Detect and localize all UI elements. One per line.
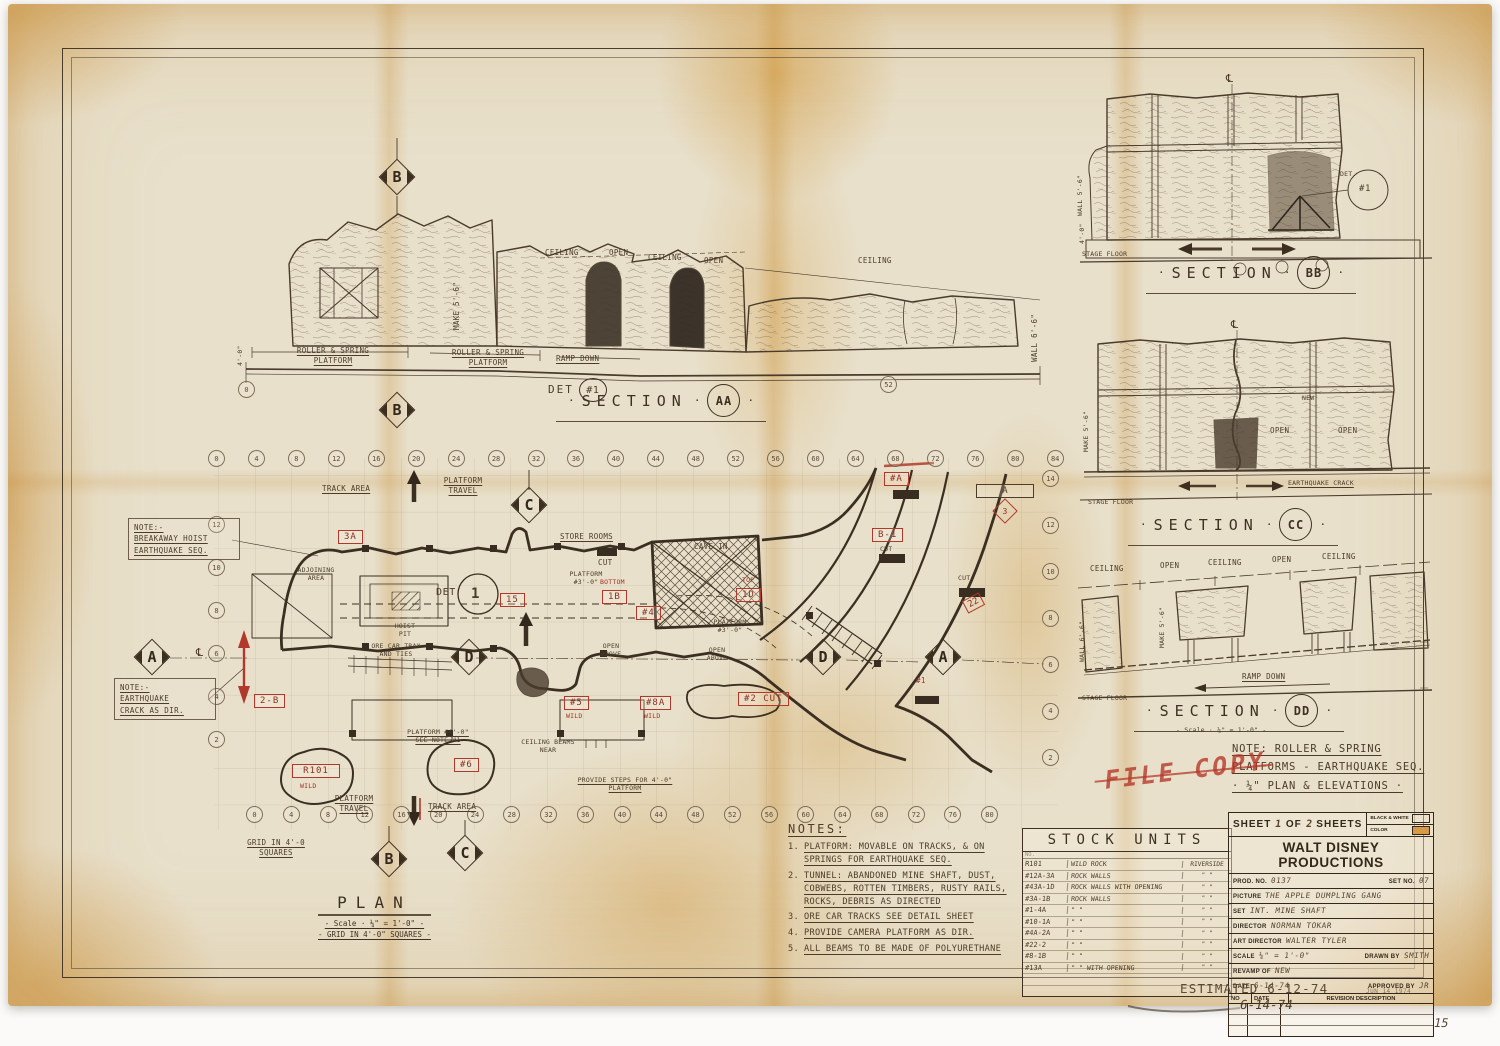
field-set: SET INT. MINE SHAFT: [1229, 904, 1433, 919]
grid-bubble: 76: [944, 806, 961, 823]
label-ceiling: CEILING: [1322, 552, 1356, 562]
tag-8a: #8A: [640, 696, 671, 710]
grid-bubble: 48: [687, 806, 704, 823]
received-date-stamp: JUN 14 1974: [1366, 988, 1411, 995]
centerline-symbol: ℄: [1226, 72, 1233, 85]
label-stage-floor: STAGE FLOOR: [1082, 694, 1127, 702]
field-scale-drawn: SCALE ¼" = 1'-0" DRAWN BY SMITH: [1229, 949, 1433, 964]
grid-bubble: 20: [408, 450, 425, 467]
tag-b1: B-1: [872, 528, 903, 542]
grid-bubble: 32: [528, 450, 545, 467]
grid-bubble: 48: [687, 450, 704, 467]
label-roller-spring-platform: ROLLER & SPRINGPLATFORM: [258, 346, 408, 366]
section-marker-c-top: C: [512, 488, 546, 522]
grid-bubble: 36: [567, 450, 584, 467]
notes-block: NOTES: 1. PLATFORM: MOVABLE ON TRACKS, &…: [788, 822, 1026, 959]
grid-bubble: 0: [238, 381, 255, 398]
centerline-symbol: ℄: [1231, 318, 1238, 331]
grid-bubble: 0: [208, 450, 225, 467]
grid-bubble: 52: [880, 376, 897, 393]
stock-unit-row: #8-1B " " " ": [1023, 951, 1231, 963]
section-marker-a-left: A: [135, 640, 169, 674]
label-open-above: OPENABOVE: [696, 646, 738, 663]
label-platform-3-0: PLATFORM#3'-0": [700, 618, 760, 635]
grid-bubble: 28: [503, 806, 520, 823]
grid-bubble: 4: [1042, 703, 1059, 720]
grid-bubble: 40: [607, 450, 624, 467]
blueprint-photo: B B C A D D A B C ℄ ℄ ℄ CEILING OPEN CEI…: [0, 0, 1500, 1046]
tag-4: #4: [636, 606, 661, 620]
grid-bubble: 36: [577, 806, 594, 823]
company-name: WALT DISNEY PRODUCTIONS: [1229, 837, 1433, 873]
grid-bubble: 60: [807, 450, 824, 467]
label-top: TOP: [742, 576, 754, 584]
grid-bubble: 24: [448, 450, 465, 467]
label-adjoining-area: ADJOININGAREA: [286, 566, 346, 583]
stock-unit-row: #1-4A " " " ": [1023, 905, 1231, 917]
revision-empty-row: [1229, 1015, 1433, 1026]
grid-bubble: 0: [246, 806, 263, 823]
grid-bubble: 72: [927, 450, 944, 467]
label-open: OPEN: [609, 248, 628, 258]
tag-1d: 1D: [736, 588, 761, 602]
grid-bubble: 72: [908, 806, 925, 823]
section-marker-c-bottom: C: [448, 836, 482, 870]
tag-1b: 1B: [602, 590, 627, 604]
stock-units-table: STOCK UNITS NO. R101 WILD ROCK RIVERSIDE…: [1022, 828, 1232, 997]
label-hoist-pit: HOISTPIT: [388, 622, 422, 639]
label-make-5-6: MAKE 5'-6": [452, 282, 462, 330]
section-title-aa: ·SECTION· AA·: [556, 384, 766, 422]
label-wild: WILD: [566, 712, 582, 720]
grid-bubble: 6: [208, 645, 225, 662]
tag-3a: 3A: [338, 530, 363, 544]
label-wall-5-6: WALL 5'-6": [1076, 175, 1084, 216]
grid-bubble: 12: [1042, 517, 1059, 534]
stock-unit-row: #10-1A " " " ": [1023, 917, 1231, 929]
tag-2b: 2-B: [254, 694, 285, 708]
label-make-5-6: MAKE 5'-6": [1082, 411, 1090, 452]
tag-a: #A: [884, 472, 909, 486]
grid-bubble: 14: [1042, 470, 1059, 487]
label-make-5-6: MAKE 5'-6": [1158, 607, 1166, 648]
field-art-director: ART DIRECTOR WALTER TYLER: [1229, 934, 1433, 949]
grid-bubble: 16: [368, 450, 385, 467]
sheet-count: SHEET 1 OF 2 SHEETS: [1229, 813, 1366, 836]
section-marker-b-mid: B: [380, 393, 414, 427]
label-ore-car-tracks: ORE CAR TRAXAND TIES: [364, 642, 428, 659]
tag-2-cut: #2 CUT: [738, 692, 789, 706]
label-provide-steps: PROVIDE STEPS FOR 4'-0"PLATFORM: [570, 776, 680, 793]
section-marker-a-right: A: [926, 640, 960, 674]
section-marker-b-top: B: [380, 160, 414, 194]
label-wild: WILD: [644, 712, 660, 720]
grid-bubble: 32: [540, 806, 557, 823]
label-open: OPEN: [1338, 426, 1357, 436]
label-open: OPEN: [1160, 561, 1179, 571]
field-picture: PICTURE THE APPLE DUMPLING GANG: [1229, 889, 1433, 904]
grid-bubble: 52: [724, 806, 741, 823]
grid-bubble: 2: [208, 731, 225, 748]
label-open: OPEN: [1272, 555, 1291, 565]
grid-bubble: 80: [981, 806, 998, 823]
label-grid-squares: GRID IN 4'-0SQUARES: [238, 838, 314, 858]
estimated-date: ESTIMATED 6-12-74: [1180, 981, 1328, 996]
grid-bubble: 12: [328, 450, 345, 467]
label-track-area: TRACK AREA: [322, 484, 370, 494]
grid-bubble: 84: [1047, 450, 1064, 467]
label-cave-in: CAVE IN: [694, 542, 728, 552]
tag-15: 15: [500, 593, 525, 607]
grid-bubble: 40: [614, 806, 631, 823]
label-wild: WILD: [300, 782, 316, 790]
stock-unit-row: #22-2 " " " ": [1023, 940, 1231, 952]
grid-bubble: 44: [650, 806, 667, 823]
media-checkboxes: BLACK & WHITE COLOR: [1366, 813, 1433, 836]
label-bottom: BOTTOM: [600, 578, 625, 586]
label-ceiling: CEILING: [858, 256, 892, 266]
label-store-rooms: STORE ROOMS: [560, 532, 613, 542]
grid-bubble: 8: [288, 450, 305, 467]
field-prod-no: PROD. NO. 0137 SET NO. 07: [1229, 874, 1433, 889]
tag-r101: R101: [292, 764, 340, 778]
grid-bubble: 80: [1007, 450, 1024, 467]
notes-list: 1. PLATFORM: MOVABLE ON TRACKS, & ON SPR…: [788, 841, 1026, 956]
label-roller-spring-platform: ROLLER & SPRINGPLATFORM: [432, 348, 544, 368]
section-title-bb: ·SECTION· BB·: [1146, 256, 1356, 294]
label-dim-4-0: 4'-0": [1078, 223, 1086, 244]
grid-bubble: 64: [834, 806, 851, 823]
stock-unit-row: R101 WILD ROCK RIVERSIDE: [1023, 859, 1231, 871]
label-earthquake-crack: EARTHQUAKE CRACK: [1288, 479, 1354, 487]
label-open-above: OPENABOVE: [590, 642, 632, 659]
grid-bubble: 68: [887, 450, 904, 467]
grid-bubble: 56: [767, 450, 784, 467]
label-cut: CUT: [958, 574, 970, 582]
section-marker-b-bottom: B: [372, 842, 406, 876]
label-platform-travel: PLATFORMTRAVEL: [428, 476, 498, 496]
stock-unit-row: #4A-2A " " " ": [1023, 928, 1231, 940]
grid-bubble: 4: [283, 806, 300, 823]
grid-bubble: 68: [871, 806, 888, 823]
note-item: 3. ORE CAR TRACKS SEE DETAIL SHEET: [788, 911, 1026, 924]
label-ceiling: CEILING: [1208, 558, 1242, 568]
grid-bubble: 44: [647, 450, 664, 467]
grid-bubble: 8: [1042, 610, 1059, 627]
section-marker-d-left: D: [452, 640, 486, 674]
note-item: 1. PLATFORM: MOVABLE ON TRACKS, & ON SPR…: [788, 841, 1026, 867]
note-earthquake-crack: NOTE:- EARTHQUAKE CRACK AS DIR.: [114, 678, 216, 720]
estimated-date-2: 6-14-74: [1239, 997, 1294, 1012]
field-director: DIRECTOR NORMAN TOKAR: [1229, 919, 1433, 934]
grid-bubble: 28: [488, 450, 505, 467]
tag-6: #6: [454, 758, 479, 772]
page-number: 15: [1433, 1016, 1450, 1030]
label-track-area: TRACK AREA: [428, 802, 476, 812]
grid-bubble: 10: [1042, 563, 1059, 580]
stock-unit-row: #12A-3A ROCK WALLS " ": [1023, 871, 1231, 883]
stock-unit-row: #3A-1B ROCK WALLS " ": [1023, 894, 1231, 906]
note-breakaway-hoist: NOTE:- BREAKAWAY HOIST EARTHQUAKE SEQ.: [128, 518, 240, 560]
grid-bubble: 76: [967, 450, 984, 467]
grid-bubble: 60: [797, 806, 814, 823]
label-det-number-plan: 1: [471, 585, 480, 603]
label-stage-floor: STAGE FLOOR: [1082, 250, 1127, 258]
tag-a-box: A: [976, 484, 1034, 498]
plan-title-block: PLAN - Scale · ¼" = 1'-0" - - GRID IN 4'…: [318, 893, 431, 939]
notes-heading: NOTES:: [788, 822, 1026, 836]
label-det-1-plan: DET: [436, 586, 456, 599]
stock-unit-row: #13A " " WITH OPENING " ": [1023, 963, 1231, 975]
grid-bubble: 10: [208, 559, 225, 576]
grid-bubble: 52: [727, 450, 744, 467]
revision-empty-row: [1229, 1026, 1433, 1036]
section-title-cc: ·SECTION· CC·: [1128, 508, 1338, 546]
label-wall-6-6: WALL 6'-6": [1078, 621, 1086, 662]
stock-units-rows: R101 WILD ROCK RIVERSIDE #12A-3A ROCK WA…: [1023, 859, 1231, 974]
stock-units-title: STOCK UNITS: [1023, 829, 1231, 852]
plan-title: PLAN: [318, 893, 431, 916]
plan-grid-numbers-top: 0481216202428323640444852566064687276808…: [208, 450, 1064, 467]
color-checkbox: [1412, 826, 1430, 835]
label-ramp-down: RAMP DOWN: [556, 354, 599, 364]
tag-5: #5: [564, 696, 589, 710]
grid-bubble: 64: [847, 450, 864, 467]
label-platform-4-0: PLATFORM #4'-0"SEE NOTE #1: [396, 728, 480, 745]
grid-bubble: 6: [1042, 656, 1059, 673]
label-det-number: #1: [1359, 184, 1371, 196]
plan-scale: - Scale · ¼" = 1'-0" -: [318, 919, 431, 928]
label-cut: CUT: [880, 545, 892, 553]
label-open: OPEN: [704, 256, 723, 266]
grid-bubble: 16: [393, 806, 410, 823]
bw-checkbox: [1412, 814, 1430, 823]
plan-grid-numbers-right: 1412108642: [1042, 470, 1059, 766]
label-ceiling-beams: CEILING BEAMSNEAR: [512, 738, 584, 755]
label-section-dd-scale: - Scale · ¼" = 1'-0" -: [1176, 726, 1267, 734]
label-platform-travel: PLATFORMTRAVEL: [320, 794, 388, 814]
section-marker-d-right: D: [806, 640, 840, 674]
stock-units-header: NO.: [1023, 852, 1231, 859]
grid-bubble: 8: [208, 602, 225, 619]
grid-bubble: 56: [761, 806, 778, 823]
label-ceiling: CEILING: [648, 253, 682, 263]
grid-bubble: 2: [1042, 749, 1059, 766]
label-new: NEW: [1302, 394, 1314, 402]
label-wall-6-6: WALL 6'-6": [1030, 314, 1040, 362]
grid-bubble: 4: [248, 450, 265, 467]
label-dim-4-0: 4'-0": [236, 345, 244, 366]
label-ceiling: CEILING: [1090, 564, 1124, 574]
label-ramp-down: RAMP DOWN: [1242, 672, 1285, 682]
field-revamp: REVAMP OF NEW: [1229, 964, 1433, 979]
note-item: 5. ALL BEAMS TO BE MADE OF POLYURETHANE: [788, 943, 1026, 956]
label-ceiling: CEILING: [545, 248, 579, 258]
label-det: DET.: [1340, 170, 1356, 178]
stock-unit-row: #43A-1D ROCK WALLS WITH OPENING " ": [1023, 882, 1231, 894]
label-stage-floor: STAGE FLOOR: [1088, 498, 1133, 506]
note-item: 2. TUNNEL: ABANDONED MINE SHAFT, DUST, C…: [788, 870, 1026, 909]
label-cut: CUT: [598, 558, 612, 568]
plan-grid-note: - GRID IN 4'-0" SQUARES -: [318, 930, 431, 939]
label-open: OPEN: [1270, 426, 1289, 436]
tag-1-red: #1: [916, 676, 926, 686]
note-item: 4. PROVIDE CAMERA PLATFORM AS DIR.: [788, 927, 1026, 940]
centerline-symbol: ℄: [196, 646, 203, 659]
